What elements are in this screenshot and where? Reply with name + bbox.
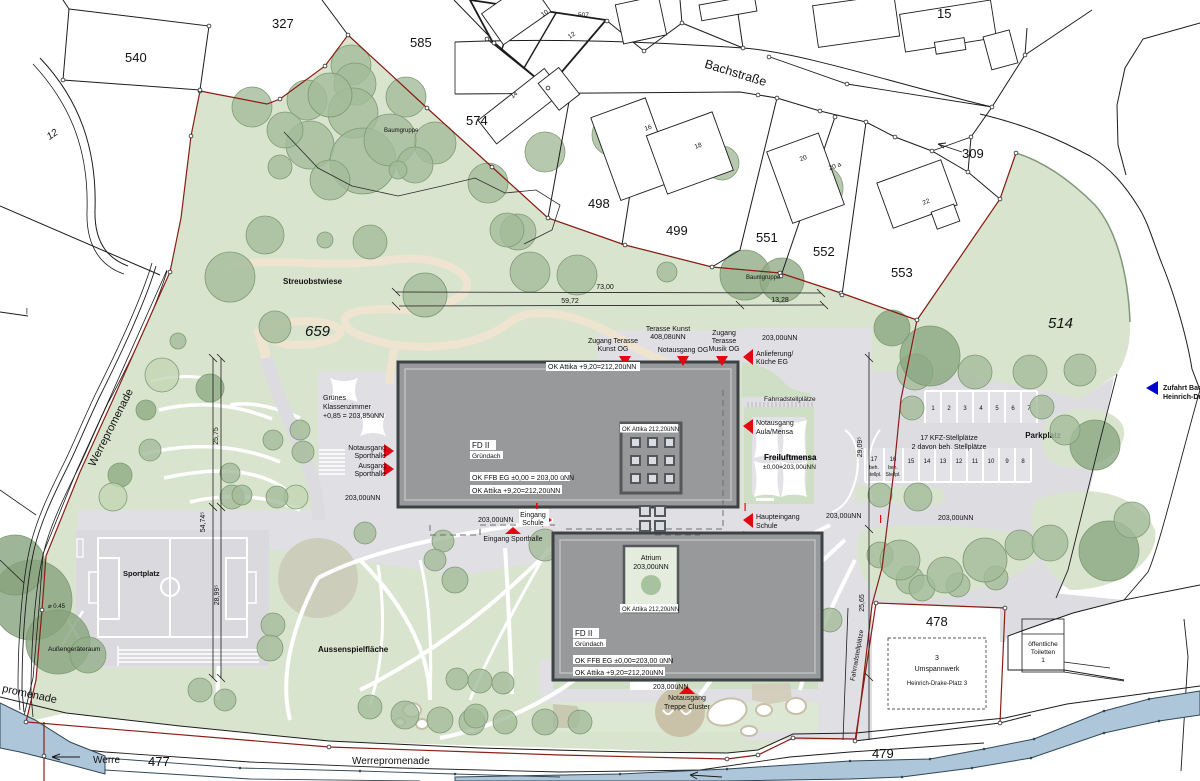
svg-text:Notausgang: Notausgang bbox=[756, 420, 794, 427]
svg-text:574: 574 bbox=[466, 113, 488, 128]
svg-text:beh.: beh. bbox=[869, 465, 879, 471]
svg-text:Baumgruppe: Baumgruppe bbox=[746, 275, 781, 281]
svg-text:Küche EG: Küche EG bbox=[756, 359, 788, 366]
svg-text:beh.: beh. bbox=[888, 465, 898, 471]
svg-text:540: 540 bbox=[125, 50, 147, 65]
svg-text:Notausgang: Notausgang bbox=[348, 445, 386, 452]
svg-text:⌀ 0.45: ⌀ 0.45 bbox=[48, 604, 66, 610]
svg-text:477: 477 bbox=[148, 754, 170, 769]
svg-text:Schule: Schule bbox=[756, 523, 778, 530]
svg-text:Sporthalle: Sporthalle bbox=[354, 471, 386, 478]
svg-text:+0,85 = 203,85üNN: +0,85 = 203,85üNN bbox=[323, 413, 384, 420]
svg-text:Zufahrt Bach: Zufahrt Bach bbox=[1163, 385, 1200, 392]
svg-text:552: 552 bbox=[813, 244, 835, 259]
svg-text:OK Attika +9,20=212,20üNN: OK Attika +9,20=212,20üNN bbox=[472, 488, 560, 495]
svg-text:Streuobstwiese: Streuobstwiese bbox=[283, 277, 343, 286]
svg-text:OK Attika +9,20=212,20üNN: OK Attika +9,20=212,20üNN bbox=[548, 364, 636, 371]
svg-text:Zugang: Zugang bbox=[712, 330, 736, 337]
svg-text:Baumgruppe: Baumgruppe bbox=[384, 128, 419, 134]
svg-text:öffentliche: öffentliche bbox=[1028, 641, 1058, 648]
svg-text:OK Attika +9,20=212,20üNN: OK Attika +9,20=212,20üNN bbox=[575, 670, 663, 677]
svg-text:203,00üNN: 203,00üNN bbox=[345, 495, 380, 502]
svg-text:3: 3 bbox=[935, 655, 939, 662]
svg-text:Eingang: Eingang bbox=[520, 512, 546, 519]
svg-text:Klassenzimmer: Klassenzimmer bbox=[323, 404, 372, 411]
svg-text:Atrium: Atrium bbox=[641, 555, 661, 562]
svg-text:309: 309 bbox=[962, 146, 984, 161]
svg-text:OK Attika 212,20üNN: OK Attika 212,20üNN bbox=[622, 427, 679, 433]
svg-text:514: 514 bbox=[1048, 315, 1073, 332]
svg-text:14: 14 bbox=[924, 459, 931, 465]
svg-text:2 davon beh. Stellplätze: 2 davon beh. Stellplätze bbox=[912, 444, 987, 451]
svg-text:13,28: 13,28 bbox=[771, 297, 789, 304]
svg-text:Notausgang OG: Notausgang OG bbox=[658, 347, 709, 354]
svg-text:Werrepromenade: Werrepromenade bbox=[352, 756, 430, 767]
svg-text:13: 13 bbox=[940, 459, 947, 465]
svg-text:17 KFZ-Stellplätze: 17 KFZ-Stellplätze bbox=[920, 435, 978, 442]
svg-text:Heinrich-Drake-Platz 3: Heinrich-Drake-Platz 3 bbox=[907, 681, 968, 687]
svg-text:OK FFB EG ±0,00 = 203,00 üNN: OK FFB EG ±0,00 = 203,00 üNN bbox=[472, 475, 574, 482]
svg-text:OK FFB EG ±0,00=203,00 üNN: OK FFB EG ±0,00=203,00 üNN bbox=[575, 658, 673, 665]
svg-text:Werre: Werre bbox=[93, 755, 120, 766]
svg-text:Gründach: Gründach bbox=[472, 453, 501, 460]
svg-text:73,00: 73,00 bbox=[596, 284, 614, 291]
svg-text:Musik OG: Musik OG bbox=[708, 346, 739, 353]
svg-text:203,00üNN: 203,00üNN bbox=[762, 335, 797, 342]
svg-text:659: 659 bbox=[305, 323, 331, 340]
svg-text:15: 15 bbox=[908, 459, 915, 465]
svg-text:Haupteingang: Haupteingang bbox=[756, 514, 800, 521]
svg-text:203,00üNN: 203,00üNN bbox=[653, 684, 688, 691]
svg-text:29,09⁵: 29,09⁵ bbox=[857, 437, 864, 458]
svg-text:15: 15 bbox=[937, 6, 951, 21]
svg-text:Terasse: Terasse bbox=[712, 338, 737, 345]
svg-text:408,08üNN: 408,08üNN bbox=[650, 334, 685, 341]
svg-text:203,00üNN: 203,00üNN bbox=[826, 513, 861, 520]
svg-text:12: 12 bbox=[956, 459, 963, 465]
svg-text:±0,00=203,00üNN: ±0,00=203,00üNN bbox=[763, 464, 816, 471]
svg-text:327: 327 bbox=[272, 16, 294, 31]
svg-text:203,00üNN: 203,00üNN bbox=[938, 515, 973, 522]
svg-text:Freiluftmensa: Freiluftmensa bbox=[764, 453, 817, 462]
svg-text:10: 10 bbox=[988, 459, 995, 465]
svg-text:Terasse Kunst: Terasse Kunst bbox=[646, 326, 690, 333]
svg-text:l: l bbox=[26, 307, 28, 316]
svg-text:Kunst OG: Kunst OG bbox=[598, 346, 629, 353]
svg-text:585: 585 bbox=[410, 35, 432, 50]
svg-text:11: 11 bbox=[972, 459, 979, 465]
svg-text:Ausgang: Ausgang bbox=[358, 463, 386, 470]
svg-text:Außengeräteraum: Außengeräteraum bbox=[48, 646, 100, 653]
svg-text:551: 551 bbox=[756, 230, 778, 245]
svg-text:25,75: 25,75 bbox=[213, 427, 220, 445]
svg-text:Toiletten: Toiletten bbox=[1031, 649, 1056, 656]
svg-text:478: 478 bbox=[926, 614, 948, 629]
svg-text:499: 499 bbox=[666, 223, 688, 238]
svg-text:Fahrradstellplätze: Fahrradstellplätze bbox=[764, 396, 816, 403]
svg-text:Eingang Sporthalle: Eingang Sporthalle bbox=[483, 536, 542, 543]
svg-text:Heinrich-Dra: Heinrich-Dra bbox=[1163, 394, 1200, 401]
svg-text:Treppe Cluster: Treppe Cluster bbox=[664, 704, 711, 711]
svg-text:Notausgang: Notausgang bbox=[668, 695, 706, 702]
svg-text:Sporthalle: Sporthalle bbox=[354, 453, 386, 460]
svg-text:507: 507 bbox=[578, 12, 589, 19]
svg-text:203,00üNN: 203,00üNN bbox=[478, 517, 513, 524]
svg-text:Grünes: Grünes bbox=[323, 395, 346, 402]
svg-text:Anlieferung/: Anlieferung/ bbox=[756, 351, 793, 358]
svg-text:1: 1 bbox=[1041, 657, 1045, 664]
svg-text:25,65: 25,65 bbox=[859, 594, 866, 612]
svg-text:17: 17 bbox=[871, 457, 878, 463]
svg-text:498: 498 bbox=[588, 196, 610, 211]
svg-text:Umspannwerk: Umspannwerk bbox=[915, 666, 960, 673]
svg-text:553: 553 bbox=[891, 265, 913, 280]
svg-text:FD II: FD II bbox=[575, 629, 592, 638]
svg-text:OK Attika 212,20üNN: OK Attika 212,20üNN bbox=[622, 607, 679, 613]
svg-text:Aula/Mensa: Aula/Mensa bbox=[756, 429, 793, 436]
svg-text:Schule: Schule bbox=[522, 520, 544, 527]
svg-text:203,00üNN: 203,00üNN bbox=[633, 564, 668, 571]
svg-text:59,72: 59,72 bbox=[561, 298, 579, 305]
svg-text:54,74⁵: 54,74⁵ bbox=[200, 512, 207, 533]
svg-text:Gründach: Gründach bbox=[575, 641, 604, 648]
svg-text:Aussenspielfläche: Aussenspielfläche bbox=[318, 645, 389, 654]
svg-text:479: 479 bbox=[872, 746, 894, 761]
svg-text:FD II: FD II bbox=[472, 441, 489, 450]
svg-text:Sportplatz: Sportplatz bbox=[123, 569, 160, 578]
svg-text:Zugang Terasse: Zugang Terasse bbox=[588, 338, 638, 345]
svg-text:16: 16 bbox=[890, 457, 897, 463]
svg-text:28,99⁵: 28,99⁵ bbox=[214, 585, 221, 606]
